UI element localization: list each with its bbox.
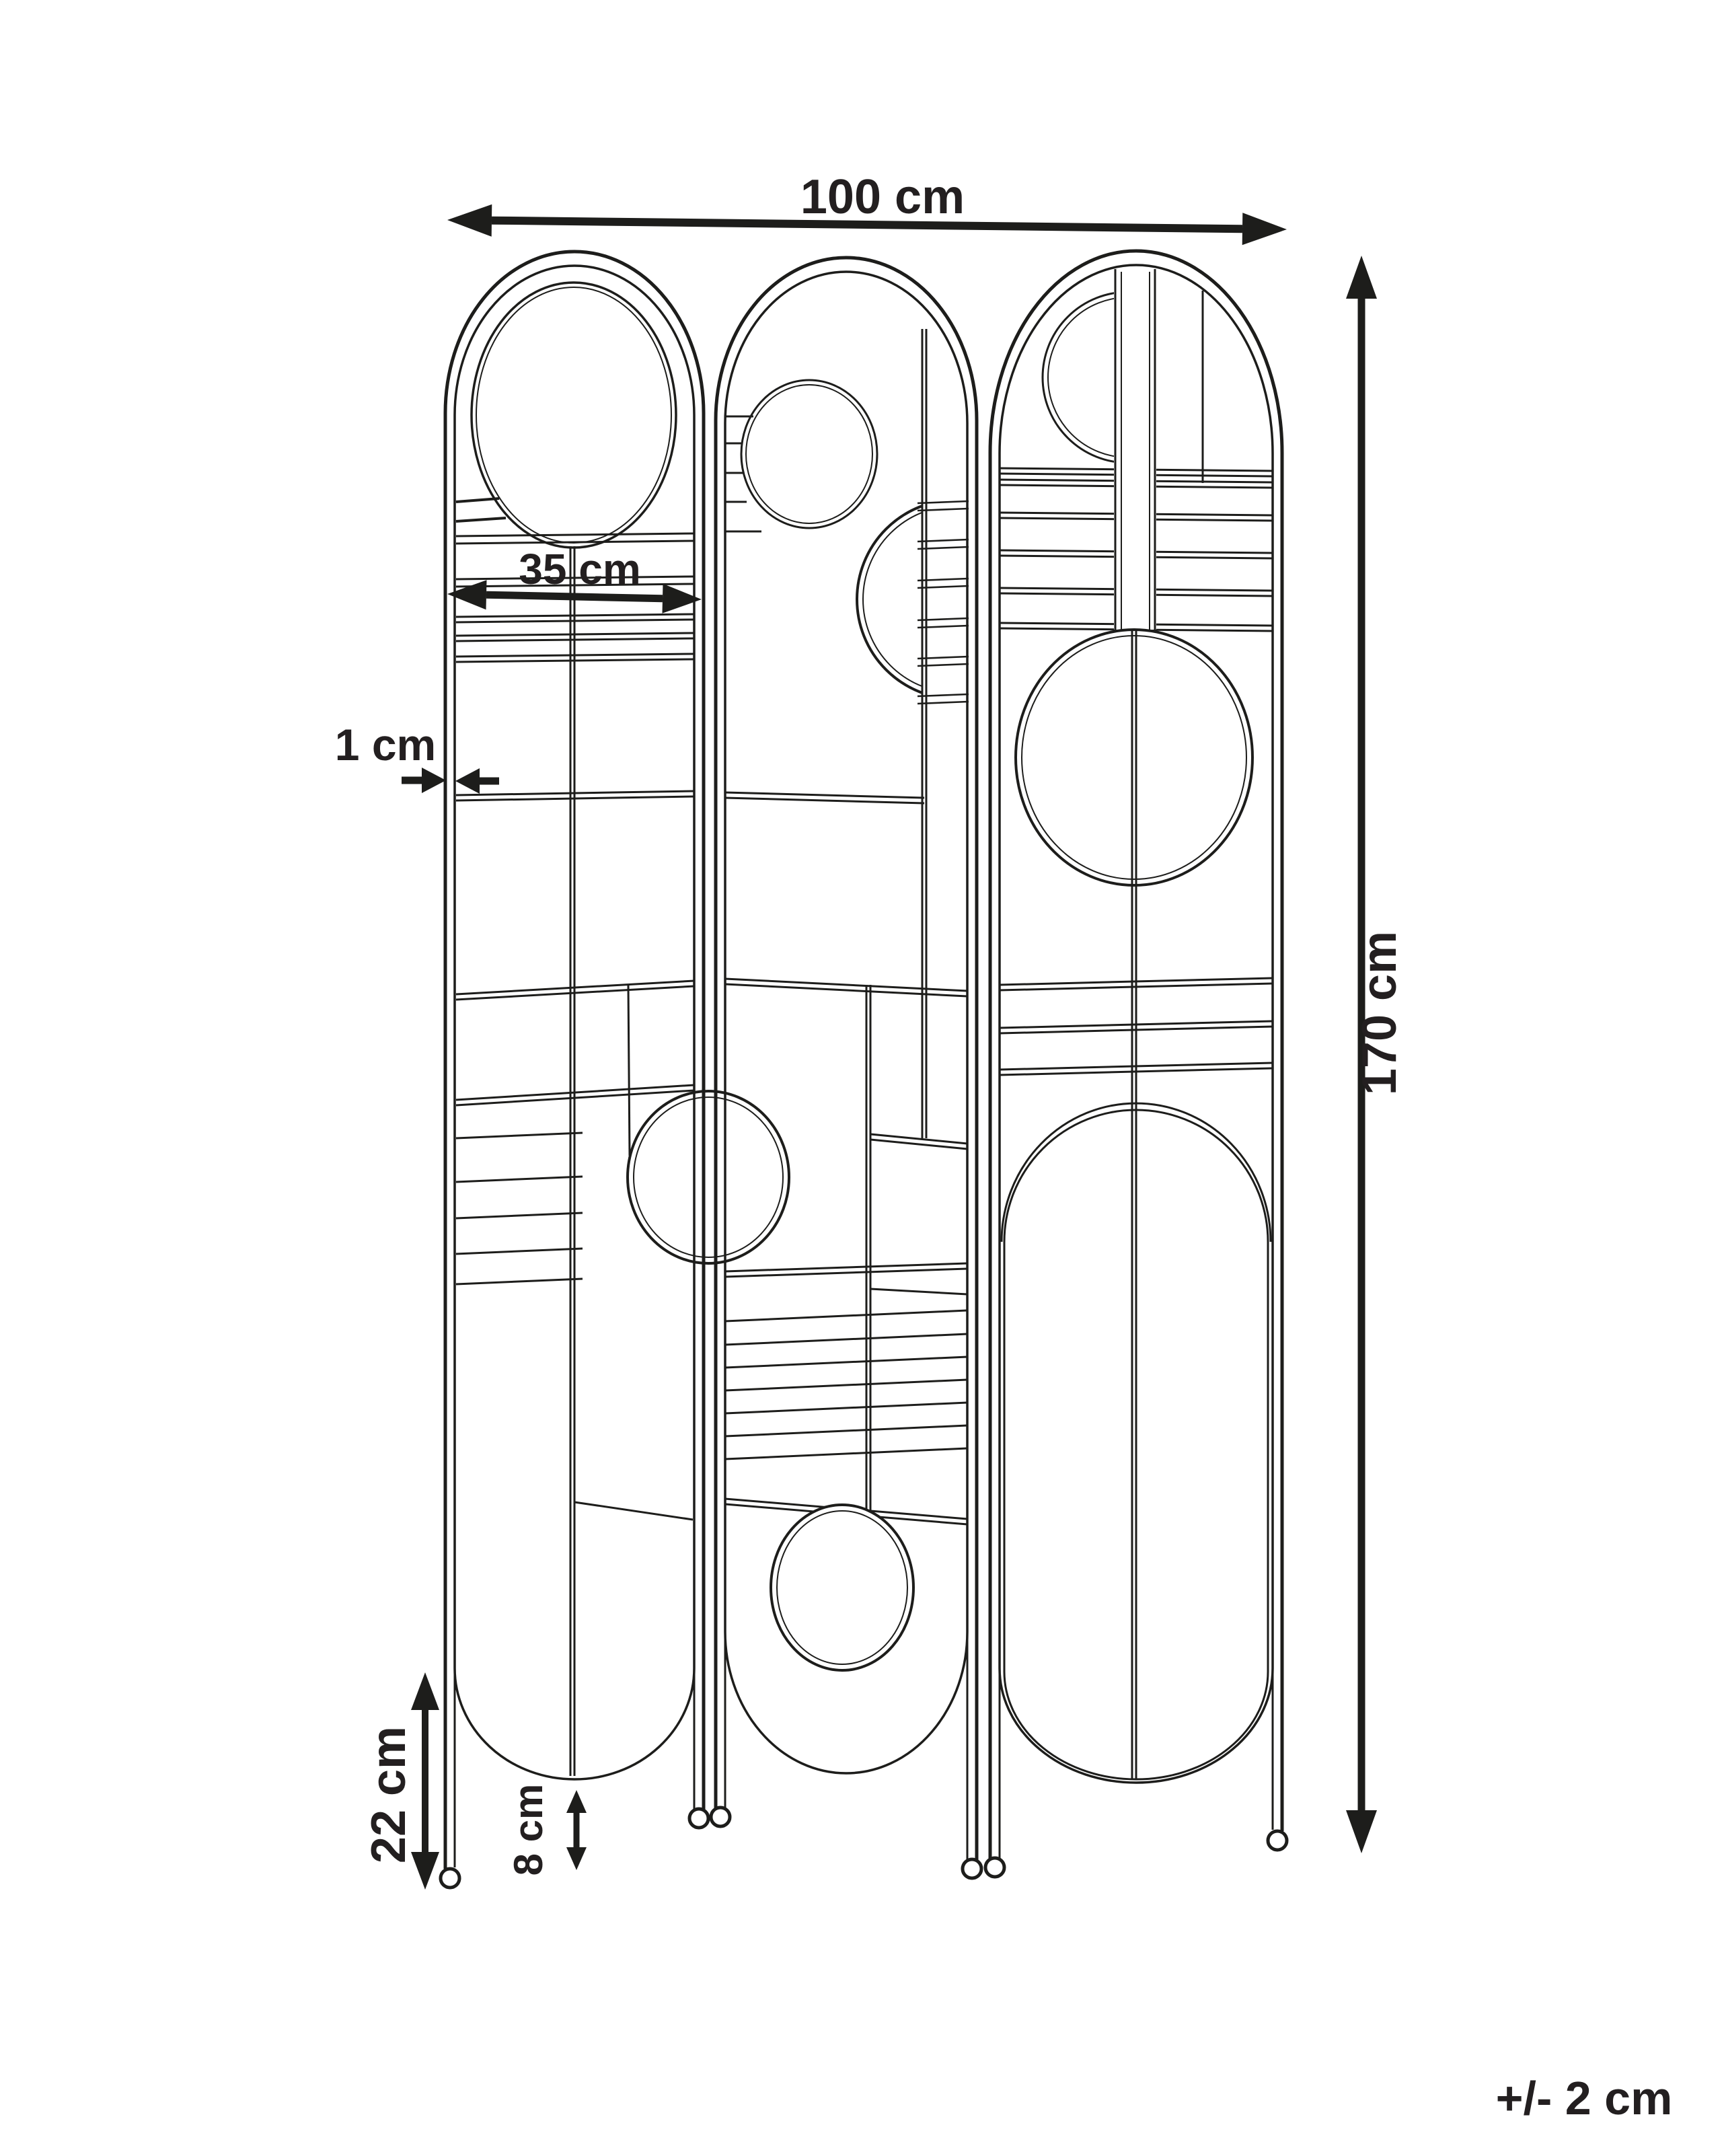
svg-text:22 cm: 22 cm	[362, 1726, 416, 1863]
svg-text:+/- 2 cm: +/- 2 cm	[1496, 2072, 1673, 2124]
svg-text:35 cm: 35 cm	[519, 545, 640, 593]
svg-text:1 cm: 1 cm	[335, 720, 436, 770]
svg-text:100 cm: 100 cm	[800, 170, 965, 224]
svg-text:170 cm: 170 cm	[1353, 931, 1407, 1095]
svg-text:8 cm: 8 cm	[506, 1784, 551, 1876]
